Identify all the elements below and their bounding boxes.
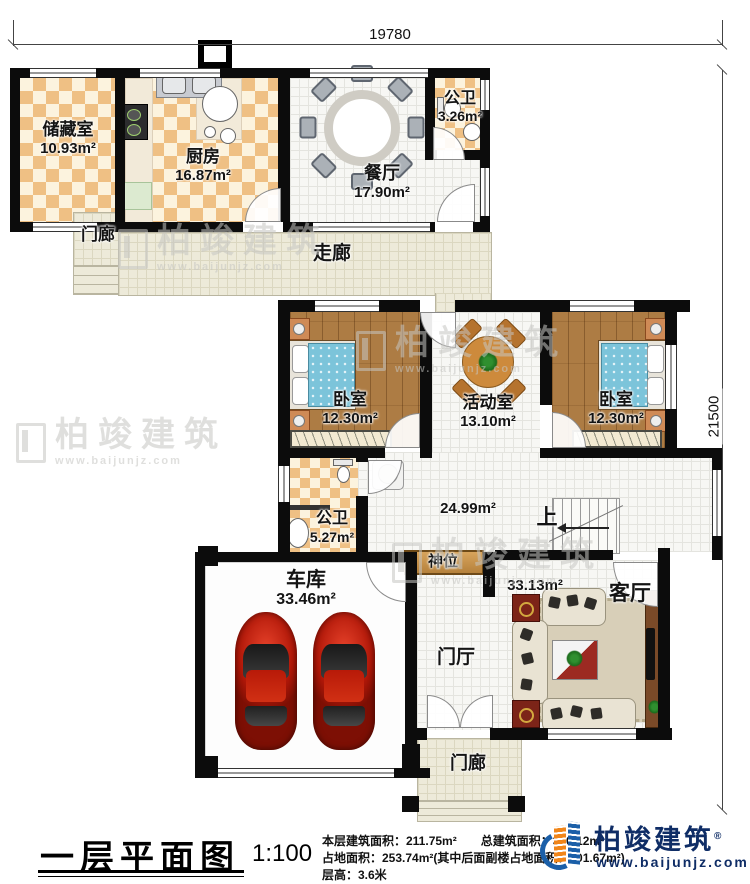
stairs-up-label: 上 (534, 507, 560, 529)
garage-door (218, 768, 394, 778)
floor-plan: 储藏室 10.93m² 厨房 16.87m² 餐厅 17.90m² 公卫 3.2… (0, 0, 750, 884)
corridor-floor (118, 232, 492, 296)
room-label-porch2: 门廊 (438, 754, 498, 773)
pillar (402, 744, 420, 778)
wall-segment (278, 448, 385, 458)
room-label-dining: 餐厅 (350, 164, 414, 183)
wardrobe (290, 430, 392, 448)
pillow (647, 345, 664, 373)
plan-scale: 1:100 (252, 840, 312, 868)
logo-tower-blue (568, 821, 580, 864)
room-label-porch1: 门廊 (69, 226, 127, 244)
window (665, 345, 677, 409)
stove-burner-2 (127, 124, 141, 136)
brand-name: 柏竣建筑® (594, 818, 724, 857)
room-label-bath1: 公卫 (434, 91, 486, 108)
room-area-dining: 17.90m² (346, 185, 418, 201)
coffee-table-plant (566, 650, 583, 667)
dimension-top-value: 19780 (352, 26, 428, 43)
room-area-kitchen: 16.87m² (168, 168, 238, 184)
brand-url: www.baijunjz.com (596, 854, 749, 870)
kitchen-sink-basin-left (162, 76, 186, 94)
wall-segment (540, 448, 712, 458)
room-label-corridor: 走廊 (300, 244, 364, 264)
toilet-bowl (337, 466, 350, 483)
pillar (198, 546, 218, 566)
room-label-kitchen: 厨房 (172, 148, 234, 166)
window (278, 466, 290, 502)
room-area-bedroom2: 12.30m² (578, 411, 654, 427)
porch-left-steps (73, 265, 124, 295)
pillow (292, 345, 309, 373)
sofa-pillow (521, 652, 534, 665)
car-rear-window (323, 706, 365, 726)
nightstand (645, 318, 667, 340)
wall-segment (540, 312, 552, 405)
wall-segment (360, 552, 405, 562)
plan-stats-line3: 层高：3.6米 (322, 866, 387, 883)
car-rear-window (245, 706, 287, 726)
dining-table (324, 90, 400, 166)
logo-tower-orange (554, 825, 566, 862)
window (548, 728, 636, 740)
brand-logo: 柏竣建筑® www.baijunjz.com (540, 816, 748, 878)
sofa-bottom (542, 698, 636, 732)
sofa-pillow (548, 596, 561, 609)
room-area-activity: 13.10m² (452, 414, 524, 430)
watermark: 柏竣建筑www.baijunjz.com (16, 418, 227, 467)
sofa-pillow (584, 597, 598, 611)
sofa-left (512, 620, 548, 704)
room-label-bedroom1: 卧室 (316, 391, 384, 409)
wall-segment (195, 552, 205, 778)
window (570, 300, 634, 312)
car-roof (324, 670, 364, 702)
sofa-pillow (590, 707, 602, 719)
brand-reg-mark: ® (714, 831, 724, 842)
pillar (508, 796, 525, 812)
nightstand (288, 410, 310, 432)
wall-segment (205, 552, 310, 562)
sofa-pillow (566, 594, 579, 607)
sofa-pillow (570, 705, 583, 718)
room-area-bath1: 3.26m² (431, 109, 489, 124)
kitchen-prep-bowl-small2 (220, 128, 236, 144)
window (140, 68, 220, 78)
tv (646, 628, 655, 680)
car (235, 612, 297, 750)
side-table (512, 700, 540, 728)
dimension-line-top (13, 44, 722, 45)
dining-chair (408, 117, 425, 139)
pillar (198, 756, 218, 776)
window (315, 300, 379, 312)
room-area-living: 33.13m² (504, 578, 566, 594)
room-label-foyer: 门厅 (430, 648, 482, 668)
wall-segment (278, 300, 290, 562)
toilet-tank (333, 459, 353, 466)
room-area-bedroom1: 12.30m² (312, 411, 388, 427)
hall-floor (358, 452, 712, 552)
shrine-label: 神位 (418, 554, 468, 570)
staircase (552, 498, 620, 554)
activity-table-plant (478, 352, 498, 372)
room-area-storage: 10.93m² (30, 141, 106, 157)
bath1-sink (463, 123, 481, 141)
dimension-right-value: 21500 (706, 389, 723, 445)
watermark-logo-icon (16, 423, 46, 463)
room-area-bath2: 5.27m² (303, 530, 361, 545)
room-label-garage: 车库 (275, 570, 337, 591)
car-roof (246, 670, 286, 702)
porch-bottom-steps (417, 800, 522, 822)
sofa-pillow (550, 707, 563, 720)
stove-burner-1 (127, 109, 141, 121)
window (313, 222, 430, 232)
nightstand (288, 318, 310, 340)
kitchen-door-mat (122, 182, 152, 210)
window (30, 68, 96, 78)
brand-logo-icon (540, 818, 588, 874)
room-label-bedroom2: 卧室 (582, 391, 650, 409)
window (310, 68, 428, 78)
stair-arrow-line (565, 527, 609, 529)
room-label-living: 客厅 (602, 583, 658, 605)
sofa-pillow (519, 627, 533, 641)
sofa-pillow (520, 678, 533, 691)
window (480, 168, 490, 216)
wall-segment (658, 548, 670, 740)
room-area-garage: 33.46m² (269, 592, 343, 609)
window (712, 470, 722, 536)
dining-chair (300, 117, 317, 139)
wall-segment (483, 552, 495, 597)
kitchen-prep-bowl-large (202, 86, 238, 122)
wall-segment (405, 728, 427, 740)
plan-title-underline-thin (38, 876, 244, 877)
side-table (512, 594, 540, 622)
wall-segment (356, 448, 368, 462)
plan-title-underline-thick (38, 870, 244, 873)
dimension-ext-line (722, 20, 723, 46)
pillow (292, 377, 309, 405)
pillar (402, 796, 419, 812)
kitchen-prep-bowl-small1 (204, 126, 216, 138)
wall-segment (495, 550, 613, 560)
car (313, 612, 375, 750)
room-label-bath2: 公卫 (306, 511, 358, 528)
room-label-activity: 活动室 (448, 394, 528, 412)
wall-segment (463, 150, 490, 160)
room-area-hall: 24.99m² (436, 501, 500, 517)
dimension-ext-line (13, 20, 14, 46)
room-label-storage: 储藏室 (30, 121, 106, 139)
wall-segment (115, 68, 125, 232)
wall-segment (10, 68, 20, 232)
